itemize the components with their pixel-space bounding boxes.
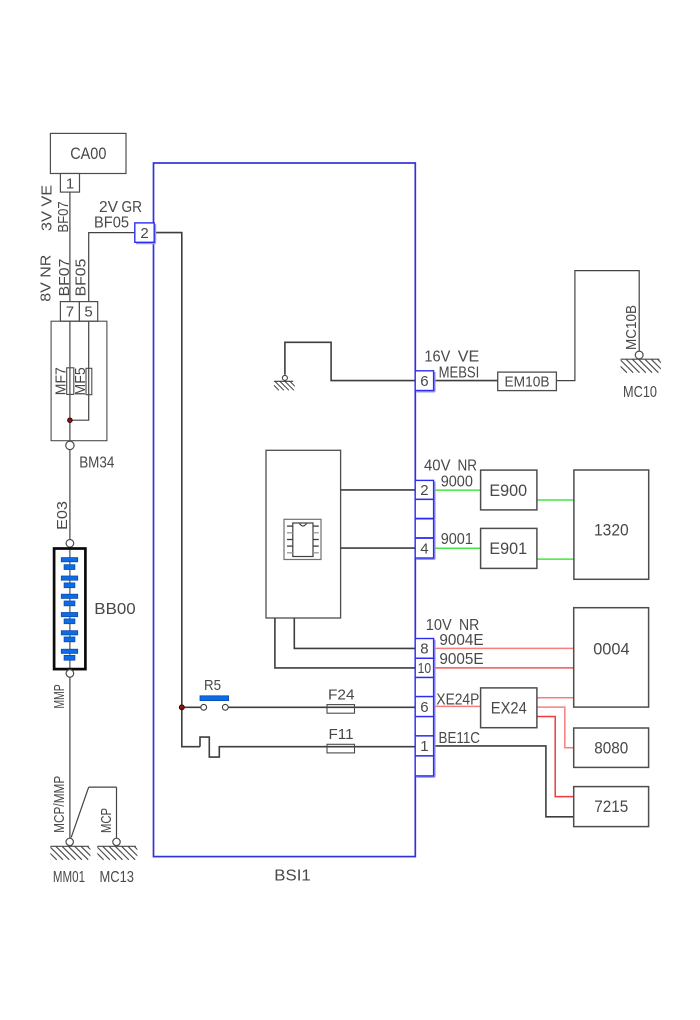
- svg-text:5: 5: [84, 304, 92, 321]
- svg-text:1320: 1320: [594, 521, 629, 540]
- svg-text:7215: 7215: [594, 797, 628, 816]
- svg-text:9001: 9001: [441, 531, 473, 548]
- svg-text:9005E: 9005E: [439, 651, 483, 668]
- svg-text:6: 6: [420, 699, 428, 716]
- svg-text:F11: F11: [329, 726, 354, 743]
- svg-text:BF05: BF05: [72, 259, 89, 297]
- svg-text:BF07: BF07: [55, 201, 72, 232]
- svg-text:MF5: MF5: [72, 367, 89, 395]
- svg-text:GR: GR: [122, 199, 143, 216]
- svg-text:0004: 0004: [593, 639, 629, 658]
- svg-text:MCP/MMP: MCP/MMP: [51, 776, 68, 833]
- svg-text:MC10B: MC10B: [623, 305, 640, 350]
- svg-text:MF7: MF7: [52, 367, 69, 395]
- svg-text:BB00: BB00: [94, 601, 136, 618]
- svg-text:1: 1: [420, 738, 428, 755]
- svg-text:R5: R5: [204, 677, 221, 694]
- svg-text:EX24: EX24: [491, 699, 527, 718]
- svg-text:8: 8: [420, 641, 428, 658]
- svg-text:40V: 40V: [424, 458, 451, 475]
- svg-text:BF05: BF05: [94, 215, 129, 232]
- svg-text:2V: 2V: [99, 199, 118, 216]
- svg-text:E03: E03: [54, 501, 71, 530]
- svg-text:MC13: MC13: [100, 869, 135, 886]
- svg-text:6: 6: [420, 373, 428, 390]
- svg-text:BSI1: BSI1: [274, 868, 311, 885]
- svg-text:E901: E901: [489, 539, 527, 558]
- svg-text:7: 7: [66, 304, 74, 321]
- svg-text:NR: NR: [458, 458, 478, 475]
- svg-text:MM01: MM01: [53, 869, 85, 886]
- svg-text:8080: 8080: [594, 739, 628, 758]
- svg-text:BF07: BF07: [56, 259, 73, 297]
- svg-text:9004E: 9004E: [439, 632, 483, 649]
- svg-text:MMP: MMP: [51, 684, 68, 708]
- svg-text:F24: F24: [328, 687, 355, 704]
- svg-text:CA00: CA00: [70, 144, 106, 163]
- svg-text:16V: 16V: [424, 349, 450, 366]
- svg-text:BM34: BM34: [79, 454, 114, 471]
- svg-text:XE24P: XE24P: [436, 691, 479, 708]
- svg-text:MEBSI: MEBSI: [439, 364, 480, 381]
- svg-text:MCP: MCP: [98, 808, 115, 833]
- svg-text:MC10: MC10: [623, 384, 657, 401]
- svg-text:BE11C: BE11C: [439, 730, 481, 747]
- svg-text:VE: VE: [458, 349, 480, 366]
- svg-text:8V NR: 8V NR: [38, 254, 55, 301]
- svg-text:10: 10: [418, 660, 432, 677]
- svg-text:E900: E900: [489, 481, 527, 500]
- svg-text:4: 4: [420, 540, 428, 557]
- svg-text:9000: 9000: [441, 473, 473, 490]
- svg-text:3V VE: 3V VE: [39, 185, 56, 231]
- svg-text:EM10B: EM10B: [505, 374, 550, 391]
- svg-text:2: 2: [420, 482, 428, 499]
- svg-text:2: 2: [140, 225, 148, 242]
- svg-text:1: 1: [66, 175, 74, 192]
